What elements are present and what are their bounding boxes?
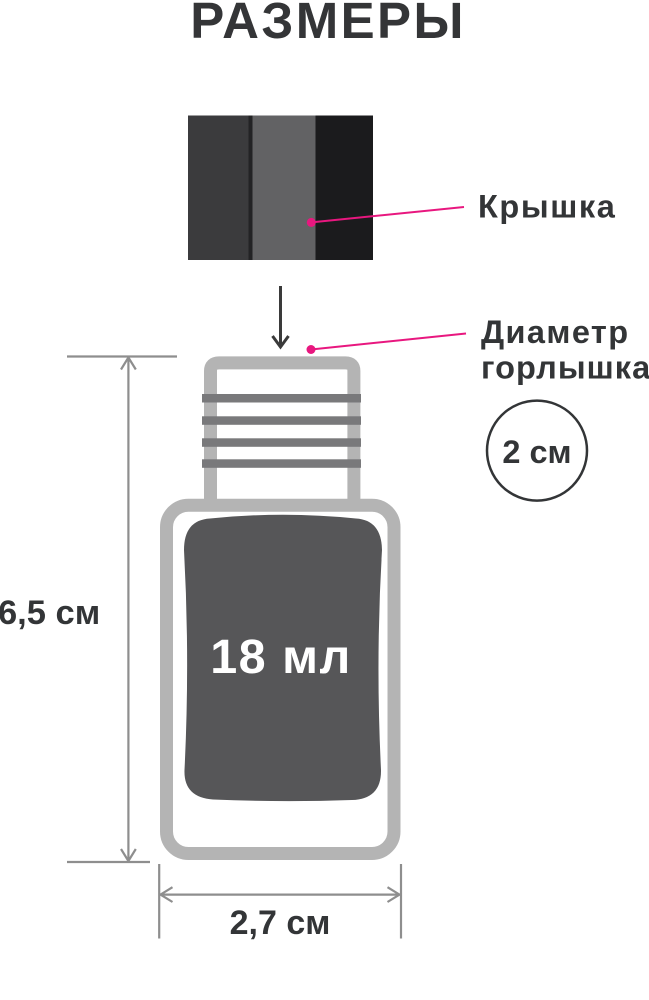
svg-text:2 см: 2 см — [502, 434, 571, 470]
svg-text:Диаметр: Диаметр — [481, 314, 629, 350]
svg-text:РАЗМЕРЫ: РАЗМЕРЫ — [190, 0, 466, 49]
svg-text:Крышка: Крышка — [478, 188, 616, 224]
svg-text:18 мл: 18 мл — [210, 630, 352, 684]
svg-text:6,5 см: 6,5 см — [0, 594, 100, 632]
svg-text:горлышка: горлышка — [481, 350, 649, 386]
svg-text:2,7 см: 2,7 см — [230, 904, 331, 942]
